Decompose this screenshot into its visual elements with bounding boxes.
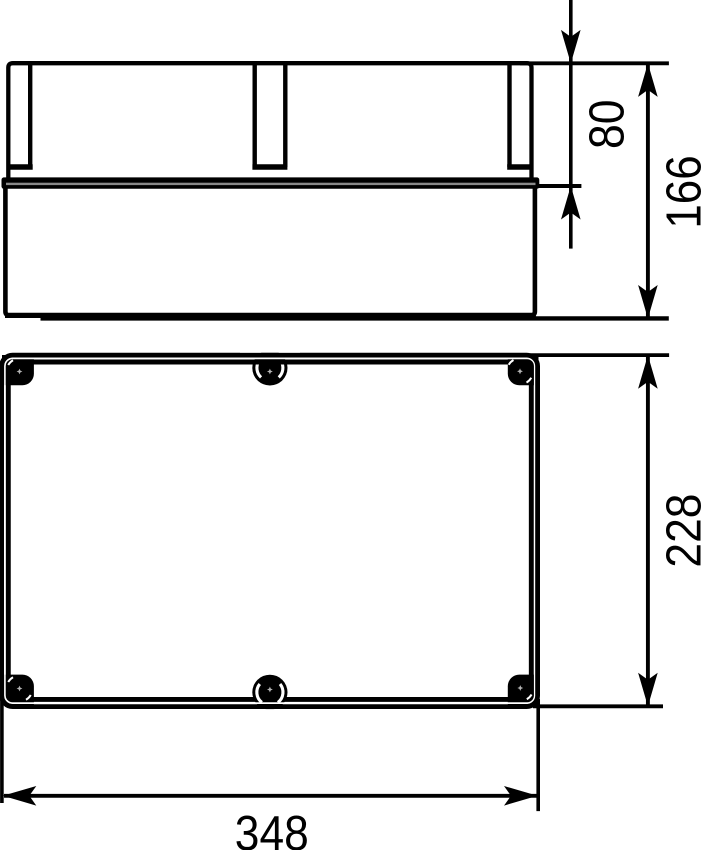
svg-text:228: 228 <box>658 494 701 568</box>
svg-text:348: 348 <box>235 807 309 850</box>
svg-text:80: 80 <box>581 100 635 150</box>
svg-text:166: 166 <box>658 155 701 228</box>
